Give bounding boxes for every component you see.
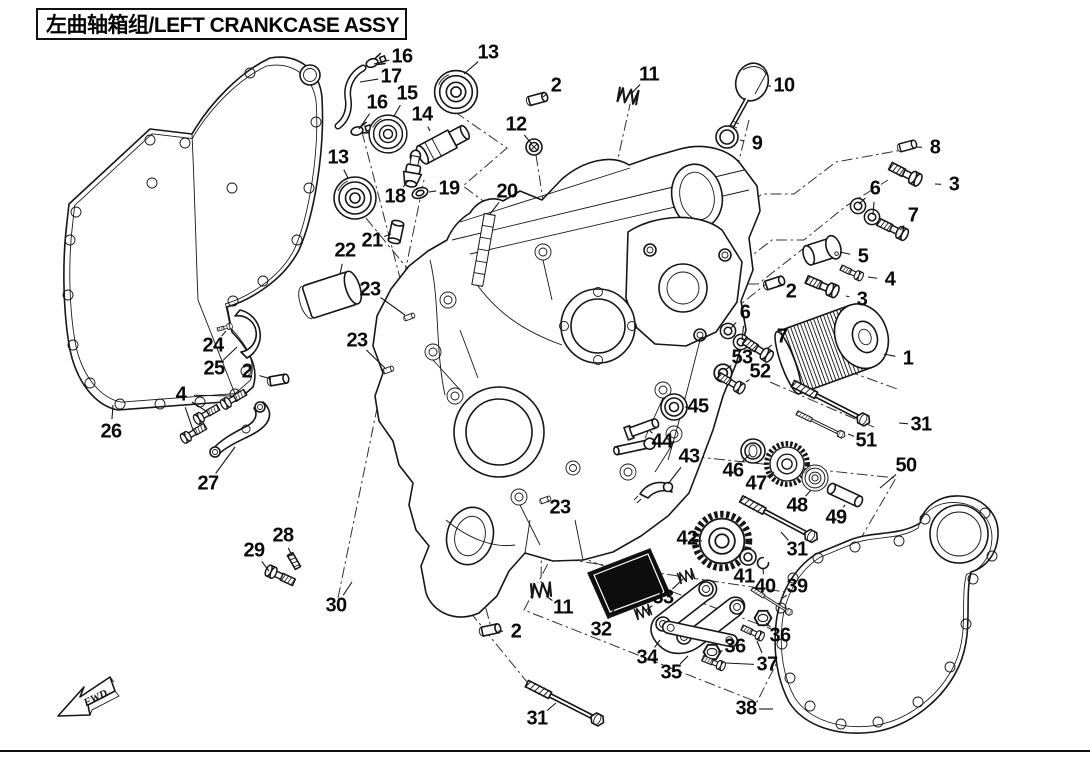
leader-line-37 xyxy=(726,663,754,664)
callout-label-50: 50 xyxy=(895,455,916,478)
part-48-bearing xyxy=(802,465,828,491)
part-22-bushing xyxy=(295,269,364,320)
callout-label-13: 13 xyxy=(327,147,348,170)
leader-line-40 xyxy=(763,569,764,574)
callout-label-3: 3 xyxy=(949,174,960,197)
callout-label-1: 1 xyxy=(903,348,914,371)
part-2-dowel xyxy=(479,623,502,636)
callout-label-38: 38 xyxy=(735,698,756,721)
callout-label-7: 7 xyxy=(777,326,788,349)
part-41-washer xyxy=(740,549,756,565)
callout-label-25: 25 xyxy=(203,358,224,381)
callout-label-4: 4 xyxy=(176,384,187,407)
callout-label-15: 15 xyxy=(396,83,417,106)
part-45-bearing-cap xyxy=(661,394,687,420)
part-13-bearing xyxy=(334,177,376,219)
callout-label-24: 24 xyxy=(202,335,223,358)
part-19-washer xyxy=(411,186,429,201)
callout-label-52: 52 xyxy=(749,361,770,384)
callout-label-51: 51 xyxy=(855,430,876,453)
leader-line-31 xyxy=(547,703,556,711)
callout-label-33: 33 xyxy=(652,587,673,610)
part-47-gear xyxy=(767,444,808,485)
fwd-arrow: FWD xyxy=(58,677,119,716)
part-12-plug xyxy=(526,139,542,155)
callout-label-14: 14 xyxy=(411,104,432,127)
part-1-oil-filter xyxy=(770,296,897,396)
callout-label-13: 13 xyxy=(477,42,498,65)
part-3-bolt xyxy=(887,160,923,187)
callout-label-23: 23 xyxy=(549,497,570,520)
leader-line-3 xyxy=(846,296,849,297)
callout-label-48: 48 xyxy=(786,495,807,518)
callout-label-3: 3 xyxy=(857,289,868,312)
callout-label-11: 11 xyxy=(639,64,659,87)
callout-label-44: 44 xyxy=(651,431,672,454)
callout-label-16: 16 xyxy=(366,92,387,115)
leader-line-2 xyxy=(778,285,780,286)
page-title: 左曲轴箱组/LEFT CRANKCASE ASSY xyxy=(46,9,399,39)
part-2-dowel xyxy=(762,275,785,290)
leader-line-15 xyxy=(394,105,400,116)
leader-line-31 xyxy=(899,423,908,424)
callout-label-31: 31 xyxy=(526,708,547,731)
part-26-left-gasket xyxy=(63,57,322,410)
leader-line-4 xyxy=(868,277,877,278)
callout-label-9: 9 xyxy=(752,133,763,156)
callout-label-36: 36 xyxy=(769,625,790,648)
callout-label-21: 21 xyxy=(361,230,382,253)
callout-label-5: 5 xyxy=(858,246,869,269)
part-51-bolt xyxy=(795,410,846,440)
title-block: 左曲轴箱组/LEFT CRANKCASE ASSY xyxy=(36,8,407,40)
callout-label-35: 35 xyxy=(660,662,681,685)
callout-label-39: 39 xyxy=(786,576,807,599)
part-49-pin xyxy=(826,482,864,508)
drawing-frame-bottom-border xyxy=(0,750,1090,752)
callout-label-40: 40 xyxy=(754,576,775,599)
callout-label-37: 37 xyxy=(756,654,777,677)
callout-label-23: 23 xyxy=(359,279,380,302)
part-11-spring xyxy=(530,582,552,598)
callout-label-31: 31 xyxy=(786,539,807,562)
part-2-dowel xyxy=(267,374,290,387)
leader-line-23 xyxy=(547,501,549,502)
callout-label-31: 31 xyxy=(910,414,931,437)
callout-label-49: 49 xyxy=(825,507,846,530)
leader-line-13 xyxy=(464,62,478,74)
leader-line-14 xyxy=(428,127,430,131)
leader-line-51 xyxy=(848,434,854,436)
callout-label-32: 32 xyxy=(590,619,611,642)
callout-label-11: 11 xyxy=(553,597,573,620)
callout-label-30: 30 xyxy=(325,595,346,618)
part-8-dowel xyxy=(897,140,918,153)
leader-line-19 xyxy=(429,191,436,192)
callout-label-43: 43 xyxy=(678,446,699,469)
callout-label-22: 22 xyxy=(334,240,355,263)
callout-label-8: 8 xyxy=(930,137,941,160)
callout-label-2: 2 xyxy=(242,361,253,384)
leader-line-13 xyxy=(344,170,348,178)
part-33-spring xyxy=(677,568,696,584)
callout-label-46: 46 xyxy=(722,460,743,483)
part-14-sleeve xyxy=(414,122,472,165)
callout-label-10: 10 xyxy=(773,75,794,98)
callout-label-6: 6 xyxy=(870,178,881,201)
part-10-dipstick xyxy=(731,59,773,128)
part-17-breather-hose xyxy=(338,68,363,126)
part-13-bearing xyxy=(435,71,478,114)
part-5-plug xyxy=(800,234,844,269)
part-11-spring xyxy=(616,87,639,105)
callout-label-26: 26 xyxy=(100,421,121,444)
callout-label-19: 19 xyxy=(438,178,459,201)
diagram-canvas: FWD xyxy=(0,0,1090,760)
part-31-stud xyxy=(790,379,872,428)
parts-diagram-page: FWD 左曲轴箱组/LEFT CRANKCASE ASSY 1617132111… xyxy=(0,0,1090,760)
part-28-stud xyxy=(287,553,300,570)
leader-line-4 xyxy=(185,407,193,430)
callout-label-2: 2 xyxy=(786,281,797,304)
leader-line-30 xyxy=(343,582,352,595)
callout-label-12: 12 xyxy=(505,114,526,137)
callout-label-45: 45 xyxy=(687,396,708,419)
part-3-bolt xyxy=(804,273,840,298)
callout-label-2: 2 xyxy=(551,75,562,98)
callout-label-42: 42 xyxy=(676,528,697,551)
callout-label-41: 41 xyxy=(733,566,754,589)
leader-line-4 xyxy=(194,395,233,396)
callout-label-36: 36 xyxy=(724,636,745,659)
callout-label-27: 27 xyxy=(197,473,218,496)
callout-label-7: 7 xyxy=(908,205,919,228)
callout-label-18: 18 xyxy=(384,186,405,209)
leader-line-7 xyxy=(768,345,772,348)
part-4-bolt xyxy=(179,422,208,445)
callout-label-29: 29 xyxy=(243,540,264,563)
callout-label-34: 34 xyxy=(636,647,657,670)
part-36-nut xyxy=(755,611,772,625)
leader-line-37 xyxy=(757,641,762,653)
part-9-oring xyxy=(716,126,738,148)
callout-label-20: 20 xyxy=(496,181,517,204)
part-7-bolt xyxy=(876,216,910,241)
callout-label-47: 47 xyxy=(745,473,766,496)
part-2-dowel xyxy=(525,92,548,106)
part-21-plug xyxy=(388,220,405,245)
callout-label-28: 28 xyxy=(272,525,293,548)
part-40-circlip xyxy=(758,558,769,569)
leader-line-17 xyxy=(360,79,378,82)
callout-label-4: 4 xyxy=(885,269,896,292)
callout-label-6: 6 xyxy=(740,302,751,325)
part-15-bearing xyxy=(369,115,407,153)
callout-label-23: 23 xyxy=(346,330,367,353)
part-29-bolt xyxy=(264,564,297,588)
callout-label-2: 2 xyxy=(511,621,522,644)
